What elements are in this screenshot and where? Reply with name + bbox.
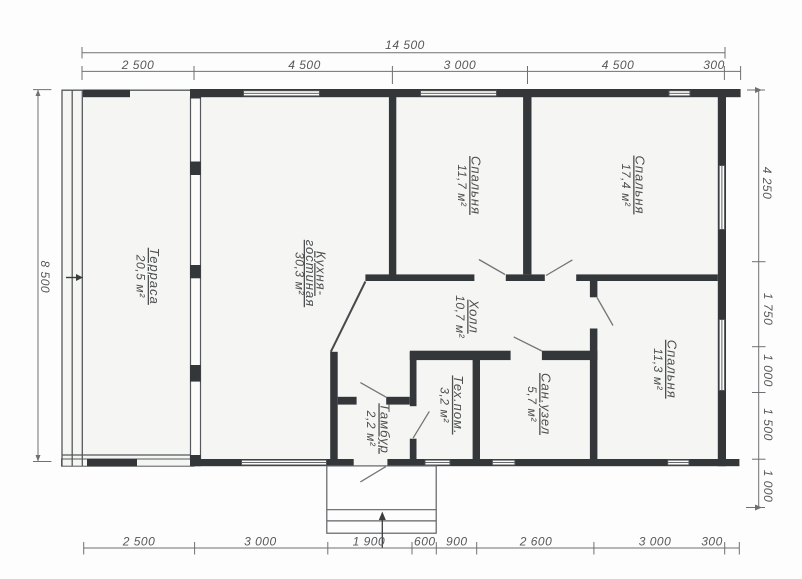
- svg-text:11,3 м²: 11,3 м²: [651, 348, 665, 391]
- svg-text:900: 900: [446, 535, 468, 549]
- svg-text:17,4 м²: 17,4 м²: [619, 163, 633, 207]
- svg-text:5,7 м²: 5,7 м²: [525, 386, 539, 422]
- svg-text:14 500: 14 500: [385, 38, 425, 52]
- svg-text:1 000: 1 000: [761, 470, 775, 503]
- svg-text:Спальня: Спальня: [664, 340, 679, 399]
- svg-text:600: 600: [414, 535, 436, 549]
- svg-text:300: 300: [701, 535, 723, 549]
- svg-text:Сан.узел: Сан.узел: [539, 373, 554, 435]
- svg-text:2 600: 2 600: [519, 535, 553, 549]
- svg-text:3,2 м²: 3,2 м²: [438, 387, 452, 423]
- svg-text:1 500: 1 500: [761, 408, 775, 441]
- svg-text:3 000: 3 000: [639, 535, 672, 549]
- svg-text:30,3 м²: 30,3 м²: [293, 252, 307, 296]
- svg-text:Спальня: Спальня: [633, 156, 648, 215]
- svg-text:1 900: 1 900: [353, 535, 386, 549]
- svg-text:Спальня: Спальня: [469, 156, 484, 215]
- svg-text:1 000: 1 000: [761, 354, 775, 387]
- svg-text:2 500: 2 500: [121, 58, 155, 72]
- svg-text:4 500: 4 500: [288, 58, 321, 72]
- svg-text:3 000: 3 000: [244, 535, 277, 549]
- svg-text:1 750: 1 750: [761, 293, 775, 326]
- svg-text:Терраса: Терраса: [147, 248, 162, 305]
- svg-text:4 500: 4 500: [602, 58, 635, 72]
- svg-text:Тамбур: Тамбур: [378, 403, 393, 454]
- svg-text:3 000: 3 000: [444, 58, 477, 72]
- svg-text:20,5 м²: 20,5 м²: [134, 254, 148, 299]
- svg-text:11,7 м²: 11,7 м²: [455, 164, 469, 207]
- svg-text:Холл: Холл: [467, 299, 482, 334]
- svg-text:8 500: 8 500: [38, 261, 52, 294]
- svg-text:Тех.пом.: Тех.пом.: [451, 375, 466, 434]
- svg-text:4 250: 4 250: [760, 167, 774, 200]
- svg-text:2 500: 2 500: [122, 535, 156, 549]
- svg-text:10,7 м²: 10,7 м²: [453, 295, 467, 339]
- svg-text:300: 300: [703, 58, 725, 72]
- svg-text:2,2 м²: 2,2 м²: [364, 410, 378, 447]
